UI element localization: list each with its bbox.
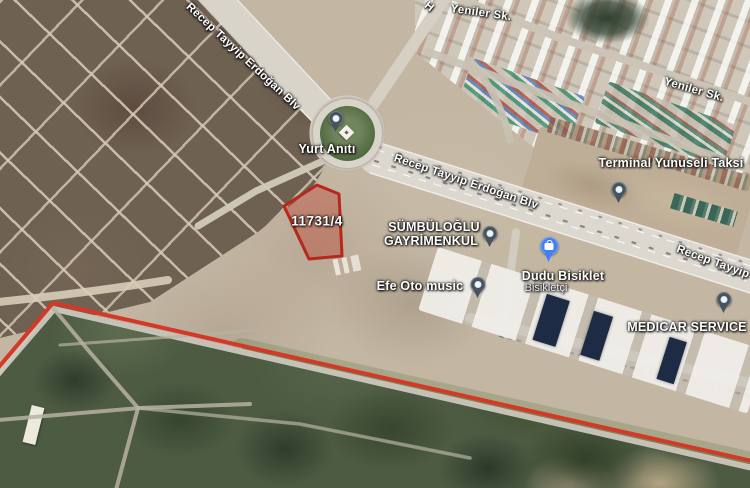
shopping-bag-icon [545, 243, 554, 250]
parcel-polygon[interactable] [284, 185, 342, 259]
pin-tail [486, 239, 494, 247]
satellite-map[interactable]: Recep Tayyip Erdoğan BlvHYeniler Sk.Yeni… [0, 0, 750, 488]
pin-tail [332, 124, 340, 132]
pin-tail [545, 253, 553, 262]
pin-tail [615, 195, 623, 203]
pin-tail [720, 305, 728, 313]
efe-oto-music-pin[interactable] [470, 277, 487, 301]
sumbuloglu-gayrimenkul-pin[interactable] [482, 226, 499, 250]
medicar-service-pin[interactable] [716, 292, 733, 316]
dudu-bisiklet-pin[interactable] [540, 237, 559, 264]
terminal-yunuseli-taksi-pin[interactable] [611, 182, 628, 206]
pin-tail [474, 290, 482, 298]
boundary-line [0, 303, 750, 461]
overlay-layer [0, 0, 750, 488]
yurt-aniti-pin[interactable] [328, 111, 345, 135]
